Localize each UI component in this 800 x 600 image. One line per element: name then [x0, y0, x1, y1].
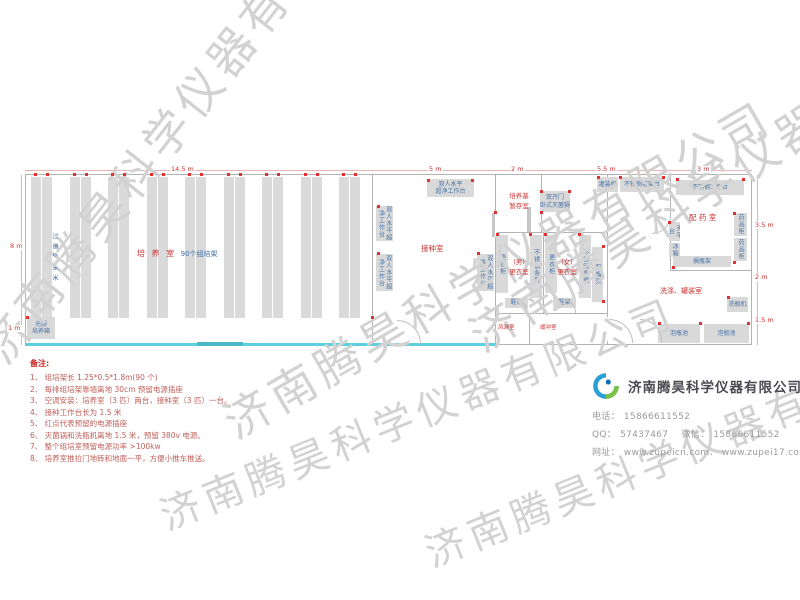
dim-label: 14.5 m — [170, 166, 195, 173]
outlet-dot — [699, 322, 702, 325]
outlet-dot — [602, 300, 605, 303]
outlet-dot — [277, 173, 280, 176]
wechat-value: 15866611552 — [713, 430, 779, 440]
company-logo-icon — [592, 372, 620, 400]
outlet-dot — [540, 190, 543, 193]
dim-label: 8 m — [9, 243, 24, 250]
outlet-dot — [111, 173, 114, 176]
outlet-dot — [46, 173, 49, 176]
company-header: 济南腾昊科学仪器有限公司 — [592, 372, 800, 400]
company-qq-line: QQ：57437467 微信：15866611552 — [592, 427, 800, 440]
outlet-dot — [265, 173, 268, 176]
notes-title: 备注: — [30, 358, 231, 369]
outlet-dot — [529, 233, 532, 236]
equip-soak-pool-2: 泡瓶池 — [704, 324, 749, 343]
outlet-dot — [578, 233, 581, 236]
culture-rack — [339, 177, 360, 318]
outlet-dot — [371, 316, 374, 319]
wall-inoculation-storage-a — [495, 174, 496, 214]
outlet-dot — [496, 233, 499, 236]
outlet-dot — [85, 173, 88, 176]
wechat-label: 微信： — [681, 430, 709, 440]
company-info: 济南腾昊科学仪器有限公司 电话：15866611552 QQ：57437467 … — [592, 372, 800, 458]
outlet-dot — [304, 173, 307, 176]
label-preparation-room: 配 药 室 — [689, 212, 716, 224]
outlet-dot — [672, 266, 675, 269]
equip-bottle-shelf: 搁瓶架 — [673, 256, 731, 267]
outlet-dot — [658, 322, 661, 325]
outlet-dot — [676, 178, 679, 181]
outlet-dot — [733, 212, 736, 215]
note-item: 7、 整个组培室预留电源功率 >100kw — [30, 441, 231, 453]
web-value: www.zupeicn.com、 www.zupei17.com — [624, 448, 800, 458]
outlet-dot — [602, 245, 605, 248]
dim-label: 1 m — [7, 325, 22, 332]
wall-prep-bottom — [670, 270, 752, 271]
outlet-dot — [227, 173, 230, 176]
outlet-dot — [200, 173, 203, 176]
outlet-dot — [597, 176, 600, 179]
outlet-dot — [477, 252, 480, 255]
label-air-shower-room: 风淋室 — [498, 324, 515, 333]
outlet-dot — [471, 179, 474, 182]
label-buffer-room: 缓冲室 — [540, 324, 557, 333]
dim-label: 5.5 m — [596, 166, 617, 173]
dim-label: 5 m — [428, 166, 443, 173]
outlet-dot — [150, 173, 153, 176]
culture-room-name: 培 养 室 — [137, 249, 181, 258]
culture-room-label: 培 养 室 90个组培架 — [137, 241, 218, 260]
company-name: 济南腾昊科学仪器有限公司 — [628, 376, 800, 396]
wall-right — [751, 174, 752, 345]
outlet-dot — [427, 179, 430, 182]
blueprint-canvas: 培 养 室 90个组培架 过道0.6米 济南腾昊科学仪器有限公司济南腾昊科学仪器… — [0, 0, 800, 600]
label-medium-storage-room: 培养基 暂存室 — [498, 191, 540, 211]
outlet-dot — [377, 205, 380, 208]
note-item: 6、 灭菌锅和洗瓶机离地 1.5 米，预留 380v 电源。 — [30, 430, 231, 442]
equip-medicine-cabinet-2: 药品柜 — [734, 238, 747, 261]
note-item: 8、 培养室推拉门地砖和地面一平，方便小推车推送。 — [30, 453, 231, 465]
outlet-dot — [733, 261, 736, 264]
company-phone-line: 电话：15866611552 — [592, 409, 800, 422]
outlet-dot — [662, 176, 665, 179]
outlet-dot — [188, 173, 191, 176]
phone-value: 15866611552 — [624, 412, 690, 422]
outlet-dot — [26, 316, 29, 319]
outlet-dot — [742, 178, 745, 181]
culture-room-rack-count: 90个组培架 — [181, 250, 218, 258]
outlet-dot — [34, 173, 37, 176]
outlet-dot — [568, 190, 571, 193]
outlet-dot — [544, 233, 547, 236]
note-item: 3、 空调安装：培养室（3 匹）两台，接种室（3 匹）一台。 — [30, 395, 231, 407]
qq-value: 57437467 — [620, 430, 668, 440]
equip-bottle-washer: 洗瓶机 — [727, 297, 748, 312]
dim-label: 2 m — [510, 166, 525, 173]
note-item: 1、 组培架长 1.25*0.5*1.8m(90 个) — [30, 372, 231, 384]
aisle-label: 过道0.6米 — [50, 233, 59, 285]
outlet-dot — [342, 173, 345, 176]
equip-clean-bench-top: 双人水平 超净工作台 — [427, 179, 474, 197]
outlet-dot — [668, 221, 671, 224]
label-inoculation-room: 接种室 — [421, 243, 444, 255]
company-web-line: 网址：www.zupeicn.com、 www.zupei17.com — [592, 445, 800, 458]
outlet-dot — [354, 173, 357, 176]
dim-label: 2 m — [754, 274, 769, 281]
dim-label: 3 m — [696, 166, 711, 173]
culture-rack — [262, 177, 283, 318]
web-label: 网址： — [592, 448, 620, 458]
outlet-dot — [619, 176, 622, 179]
equip-clean-bench-left-2: 双人水平超净工作台 — [376, 254, 393, 291]
outlet-dot — [162, 173, 165, 176]
outlet-dot — [727, 296, 730, 299]
note-item: 5、 红点代表预留的电源插座 — [30, 418, 231, 430]
culture-rack — [301, 177, 322, 318]
outlet-dot — [540, 211, 543, 214]
note-item: 2、 每排组培架靠墙离地 30cm 预留电源插座 — [30, 384, 231, 396]
dim-label: 1.5 m — [754, 317, 775, 324]
outlet-dot — [494, 211, 497, 214]
label-female-changing-room: (女) 更衣室 — [552, 257, 582, 277]
dim-label: 3.5 m — [754, 222, 775, 229]
outlet-dot — [73, 173, 76, 176]
sliding-door — [197, 342, 243, 346]
equip-clean-bench-left-1: 双人水平超净工作台 — [376, 206, 393, 241]
floor-plan: 培 养 室 90个组培架 过道0.6米 济南腾昊科学仪器有限公司济南腾昊科学仪器… — [0, 0, 800, 600]
equip-medicine-cabinet-1: 药品柜 — [734, 213, 747, 236]
outlet-dot — [123, 173, 126, 176]
culture-rack — [224, 177, 245, 318]
outlet-dot — [316, 173, 319, 176]
label-male-changing-room: (男) 更衣室 — [504, 257, 534, 277]
phone-label: 电话： — [592, 412, 620, 422]
note-item: 4、 接种工作台长为 1.5 米 — [30, 407, 231, 419]
outlet-dot — [239, 173, 242, 176]
qq-label: QQ： — [592, 430, 616, 440]
notes: 备注: 1、 组培架长 1.25*0.5*1.8m(90 个) 2、 每排组培架… — [30, 358, 231, 464]
label-washing-filling-room: 洗涤、罐装室 — [660, 286, 702, 297]
outlet-dot — [747, 322, 750, 325]
outlet-dot — [377, 252, 380, 255]
